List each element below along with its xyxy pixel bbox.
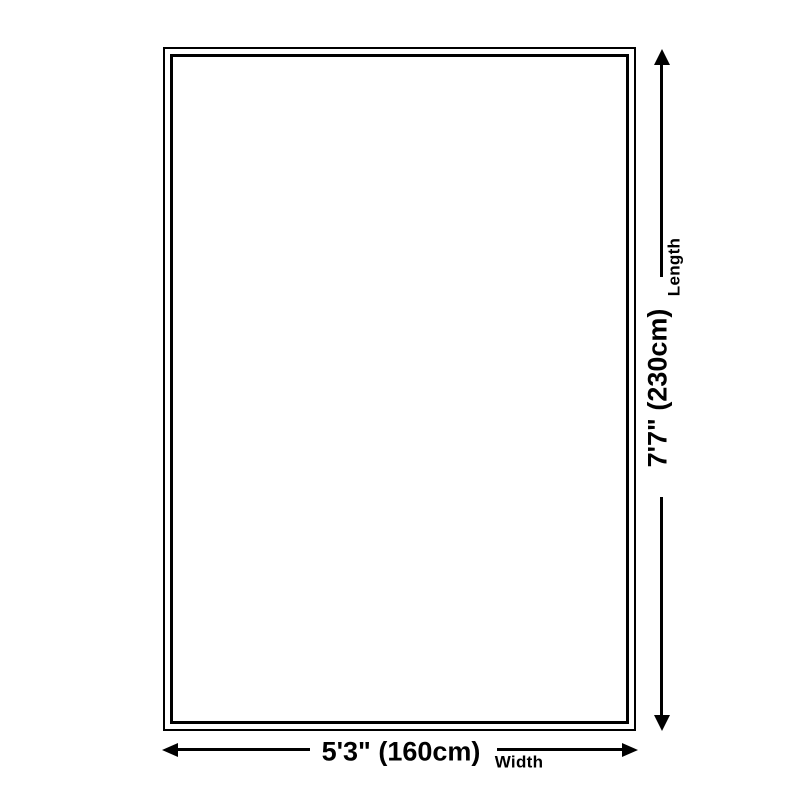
length-label: Length	[666, 238, 683, 296]
arrow-right-icon	[622, 743, 638, 757]
length-arrow-line-top	[660, 60, 663, 277]
length-arrow-line-bottom	[660, 497, 663, 716]
arrow-left-icon	[162, 743, 178, 757]
width-value: 5'3" (160cm)	[322, 739, 481, 766]
size-diagram: Length 7'7" (230cm) 5'3" (160cm) Width	[0, 0, 800, 800]
arrow-down-icon	[654, 715, 670, 731]
width-arrow-line-right	[497, 748, 622, 751]
width-arrow-line-left	[177, 748, 310, 751]
rug-outline-outer	[163, 47, 636, 731]
length-value: 7'7" (230cm)	[645, 309, 672, 468]
rug-outline-inner	[170, 54, 629, 724]
width-label: Width	[495, 754, 544, 771]
